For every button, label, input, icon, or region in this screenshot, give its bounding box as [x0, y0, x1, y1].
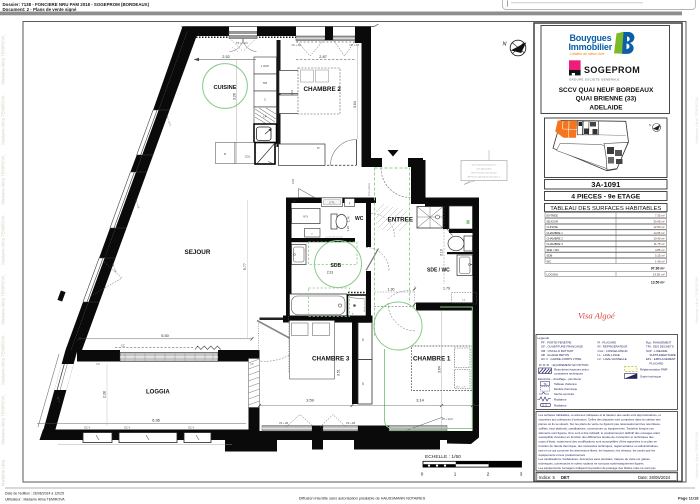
svg-text:CUISINE: CUISINE [214, 85, 237, 91]
svg-text:corps d'états, notamment des m: corps d'états, notamment des modificatio… [539, 440, 658, 444]
svg-text:GC V: GC V [84, 426, 90, 429]
svg-text:tant en ce qui concerne les di: tant en ce qui concerne les dimensions l… [539, 448, 656, 452]
svg-text:contraintes techniques: contraintes techniques [554, 371, 583, 375]
svg-text:OF + AB: OF + AB [279, 422, 289, 425]
svg-text:C: C [264, 98, 266, 102]
svg-text:SEJOUR: SEJOUR [547, 219, 558, 223]
svg-text:Pl: Pl [293, 200, 296, 204]
svg-text:techniques, convecteurs et vol: techniques, convecteurs et volets roulan… [539, 462, 645, 466]
svg-text:1: 1 [454, 472, 457, 477]
svg-text:13.50 m²: 13.50 m² [651, 280, 665, 284]
svg-text:1.23: 1.23 [346, 226, 350, 232]
svg-text:éléments sont figurés, ils le: éléments sont figurés, ils le sont à tit… [539, 431, 661, 435]
svg-text:3.02: 3.02 [290, 89, 294, 95]
svg-text:SDE / WC: SDE / WC [547, 248, 560, 252]
svg-text:SCCV QUAI NEUF BORDEAUX: SCCV QUAI NEUF BORDEAUX [559, 87, 654, 94]
svg-text:1.40 m²: 1.40 m² [655, 259, 665, 263]
svg-text:7.35 m²: 7.35 m² [655, 214, 665, 218]
svg-text:GC V: GC V [188, 426, 194, 429]
svg-text:3.26: 3.26 [232, 93, 236, 100]
svg-text:2: 2 [487, 472, 490, 477]
svg-text:pièces où ils se situent. Sur: pièces où ils se situent. Sur les plans … [539, 422, 661, 426]
svg-text:CHAMBRE 1: CHAMBRE 1 [413, 356, 451, 363]
svg-text:WC: WC [355, 216, 364, 222]
svg-text:Madame Alina TEMIROVA: Madame Alina TEMIROVA [1, 395, 6, 444]
svg-text:Madame Alina TEMIROVA: Madame Alina TEMIROVA [694, 96, 699, 143]
svg-text:Madame Alina TEMIROVA: Madame Alina TEMIROVA [1, 275, 6, 324]
svg-text:Page 11/18: Page 11/18 [678, 496, 699, 501]
svg-text:SDB: SDB [547, 254, 553, 258]
svg-text:L OUP: L OUP [261, 64, 269, 68]
svg-text:Visa Algoé: Visa Algoé [578, 311, 616, 321]
svg-text:Gaine technique: Gaine technique [640, 375, 661, 379]
svg-text:14.05 m²: 14.05 m² [653, 231, 664, 235]
svg-text:CHAMBRE 2: CHAMBRE 2 [304, 86, 342, 93]
svg-text:Immobilier: Immobilier [569, 42, 613, 52]
svg-text:1.74: 1.74 [347, 216, 351, 222]
svg-text:3.51: 3.51 [337, 369, 341, 376]
svg-text:Date: 28/05/2024: Date: 28/05/2024 [638, 475, 671, 480]
svg-text:WC: WC [547, 259, 552, 263]
svg-text:ENTREE: ENTREE [547, 214, 558, 218]
svg-text:GC V: GC V [124, 426, 130, 429]
svg-text:4 PIECES - 9e ETAGE: 4 PIECES - 9e ETAGE [571, 194, 640, 201]
svg-text:COL: COL [245, 155, 251, 159]
svg-text:2.87: 2.87 [319, 54, 327, 59]
svg-text:Réglementation PMR: Réglementation PMR [640, 368, 667, 372]
svg-text:Diffusion interdite sans autor: Diffusion interdite sans autorisation pr… [299, 497, 426, 501]
svg-text:LOGGIA: LOGGIA [547, 272, 559, 276]
svg-text:LV : LAVE-VAISSELLE: LV : LAVE-VAISSELLE [598, 357, 627, 361]
svg-text:Indice: 5: Indice: 5 [539, 475, 556, 480]
svg-text:susceptible d'évoluer en fonct: susceptible d'évoluer en fonction des di… [539, 435, 655, 439]
svg-text:1.79: 1.79 [443, 286, 450, 290]
svg-text:Electricité - chauffage - plom: Electricité - chauffage - plomberie : [538, 377, 583, 381]
svg-text:Sèche-serviette: Sèche-serviette [554, 392, 574, 396]
svg-text:2.31: 2.31 [327, 271, 334, 275]
svg-text:Légende: Légende [538, 336, 550, 340]
svg-text:4.85 m²: 4.85 m² [655, 248, 665, 252]
svg-text:Madame Alina TEMIROVA: Madame Alina TEMIROVA [1, 95, 6, 144]
svg-text:3.14: 3.14 [416, 398, 424, 403]
svg-text:2.52: 2.52 [222, 54, 230, 59]
svg-text:PF + GCV: PF + GCV [442, 418, 453, 421]
svg-text:CHAMBRE 3: CHAMBRE 3 [312, 356, 350, 363]
svg-text:DET: DET [561, 475, 570, 480]
svg-text:CUISINE: CUISINE [547, 225, 558, 229]
svg-text:LT FL: LT FL [329, 203, 336, 205]
svg-text:Madame Alina TEMIROVA: Madame Alina TEMIROVA [1, 35, 6, 84]
svg-text:Madame Alina TEMIROVA: Madame Alina TEMIROVA [694, 276, 699, 323]
svg-text:SDE / WC: SDE / WC [427, 267, 450, 273]
svg-text:SOGEPROM: SOGEPROM [584, 65, 640, 75]
svg-text:Madame Alina TEMIROVA: Madame Alina TEMIROVA [1, 335, 6, 384]
svg-text:Pl: Pl [361, 382, 365, 385]
svg-text:3.64: 3.64 [437, 366, 441, 373]
svg-text:ADELAIDE: ADELAIDE [589, 104, 623, 111]
svg-text:ENTREE: ENTREE [388, 217, 414, 224]
svg-text:Pl: Pl [317, 146, 320, 150]
svg-text:Bande éveil: Bande éveil [364, 300, 366, 312]
svg-text:MTh: MTh [303, 216, 308, 219]
svg-text:EPL + LP: EPL + LP [456, 387, 466, 389]
svg-text:Pl: Pl [361, 338, 365, 341]
svg-text:30.45 m²: 30.45 m² [653, 219, 664, 223]
svg-text:3A-1091: 3A-1091 [591, 180, 621, 189]
svg-text:NF DTU 20.13 selon Section: NF DTU 20.13 selon Section [471, 172, 496, 175]
svg-text:CHAMBRE 3: CHAMBRE 3 [547, 242, 564, 246]
svg-text:Document: 2 - Plans de vente s: Document: 2 - Plans de vente signé [3, 7, 77, 12]
svg-text:cuvette démontable: cuvette démontable [325, 235, 344, 238]
svg-text:1.30: 1.30 [388, 288, 395, 292]
svg-text:SDB: SDB [331, 263, 342, 269]
svg-text:3.64: 3.64 [353, 101, 357, 108]
svg-text:LP: LP [263, 115, 266, 119]
svg-text:Créateur de mieux vivre: Créateur de mieux vivre [570, 52, 605, 56]
svg-text:BP Team h=63 dalle brute haute: BP Team h=63 dalle brute hauteur h [468, 176, 500, 179]
svg-text:SEJOUR: SEJOUR [185, 249, 211, 256]
svg-text:Verre Sud mixte plafond sur: Verre Sud mixte plafond sur [472, 164, 497, 167]
svg-text:OF + AB: OF + AB [350, 44, 360, 47]
svg-text:0: 0 [421, 472, 424, 477]
svg-text:Date de l'édition : 26/06/2024: Date de l'édition : 26/06/2024 à 12h25 [5, 492, 64, 496]
svg-text:3.59: 3.59 [306, 398, 314, 403]
svg-text:Radiateur: Radiateur [554, 398, 567, 402]
svg-text:13.50 m²: 13.50 m² [653, 272, 665, 276]
svg-text:5.50: 5.50 [161, 333, 169, 338]
svg-text:Tableau d'abonné: Tableau d'abonné [554, 382, 577, 386]
svg-text:PLACARD: PLACARD [650, 361, 664, 365]
svg-text:Madame Alina TEMIROVA: Madame Alina TEMIROVA [1, 155, 6, 204]
svg-text:QUAI BRIENNE (33): QUAI BRIENNE (33) [576, 96, 637, 103]
svg-text:Madame Alina: Madame Alina [1, 459, 6, 486]
svg-text:N: N [503, 42, 507, 48]
svg-text:OF + AB: OF + AB [292, 44, 302, 47]
svg-text:2.28: 2.28 [103, 391, 107, 398]
svg-text:Les canalisations, barbacanes,: Les canalisations, barbacanes, descentes… [539, 457, 651, 461]
svg-text:fonction de l'étude thermique,: fonction de l'étude thermique, des néces… [539, 444, 659, 448]
svg-text:rives plafond finie: rives plafond finie [476, 169, 492, 171]
svg-text:soffites, faux plafonds, canal: soffites, faux plafonds, canalisations, … [539, 426, 655, 430]
svg-text:Radiateur: Radiateur [554, 404, 567, 408]
svg-text:Utilisateur : Madame Alina TEM: Utilisateur : Madame Alina TEMIROVA [5, 498, 65, 502]
svg-text:Module thermique: Module thermique [554, 387, 578, 391]
svg-text:6.36: 6.36 [152, 417, 160, 422]
svg-text:TRI: TRI [263, 81, 268, 85]
svg-text:TA: TA [543, 382, 546, 386]
svg-text:GC V : GARDE-CORPS VITRE: GC V : GARDE-CORPS VITRE [541, 357, 581, 361]
svg-text:11.75 m²: 11.75 m² [654, 242, 665, 246]
svg-text:TABLEAU DES SURFACES HABITABLE: TABLEAU DES SURFACES HABITABLES [550, 206, 661, 212]
svg-text:: EQUIPEMENT EN OPTION: : EQUIPEMENT EN OPTION [551, 363, 588, 367]
svg-text:soumises aux tolérances d'exéc: soumises aux tolérances d'exécution. Cel… [539, 418, 662, 422]
svg-text:0.92: 0.92 [291, 178, 295, 184]
svg-text:04P: 04P [250, 364, 255, 366]
svg-text:OF + AB: OF + AB [346, 422, 356, 425]
svg-text:CHAMBRE 1: CHAMBRE 1 [547, 231, 564, 235]
svg-text:3.19: 3.19 [440, 249, 444, 256]
svg-text:CC: CC [121, 343, 125, 347]
svg-text:5.77: 5.77 [243, 263, 247, 270]
svg-text:12.50 m²: 12.50 m² [653, 225, 664, 229]
svg-text:CHAMBRE 2: CHAMBRE 2 [547, 237, 564, 241]
svg-text:R: R [224, 152, 226, 156]
svg-text:GROUPE SOCIETE GENERALE: GROUPE SOCIETE GENERALE [569, 77, 620, 81]
svg-text:04P: 04P [96, 364, 101, 366]
svg-text:97.90 m²: 97.90 m² [651, 266, 665, 270]
svg-text:équipements et leur positionne: équipements et leur positionnement. [539, 453, 587, 457]
svg-text:3: 3 [520, 472, 523, 477]
svg-text:ECHELLE : 1/50: ECHELLE : 1/50 [425, 454, 461, 460]
svg-text:Porte palière: Porte palière [368, 182, 371, 196]
svg-text:Les équipements ménagers indiq: Les équipements ménagers indiquent la po… [539, 466, 656, 470]
svg-text:10.40 m²: 10.40 m² [653, 237, 664, 241]
svg-text:LOGGIA: LOGGIA [146, 390, 170, 396]
svg-text:Madame Alina TEMIROVA: Madame Alina TEMIROVA [694, 431, 699, 478]
svg-text:5.15 m²: 5.15 m² [655, 254, 665, 258]
svg-text:Madame Alina TEMIROVA: Madame Alina TEMIROVA [1, 215, 6, 264]
svg-text:Les surfaces habitables, et an: Les surfaces habitables, et annexes indi… [539, 413, 661, 417]
